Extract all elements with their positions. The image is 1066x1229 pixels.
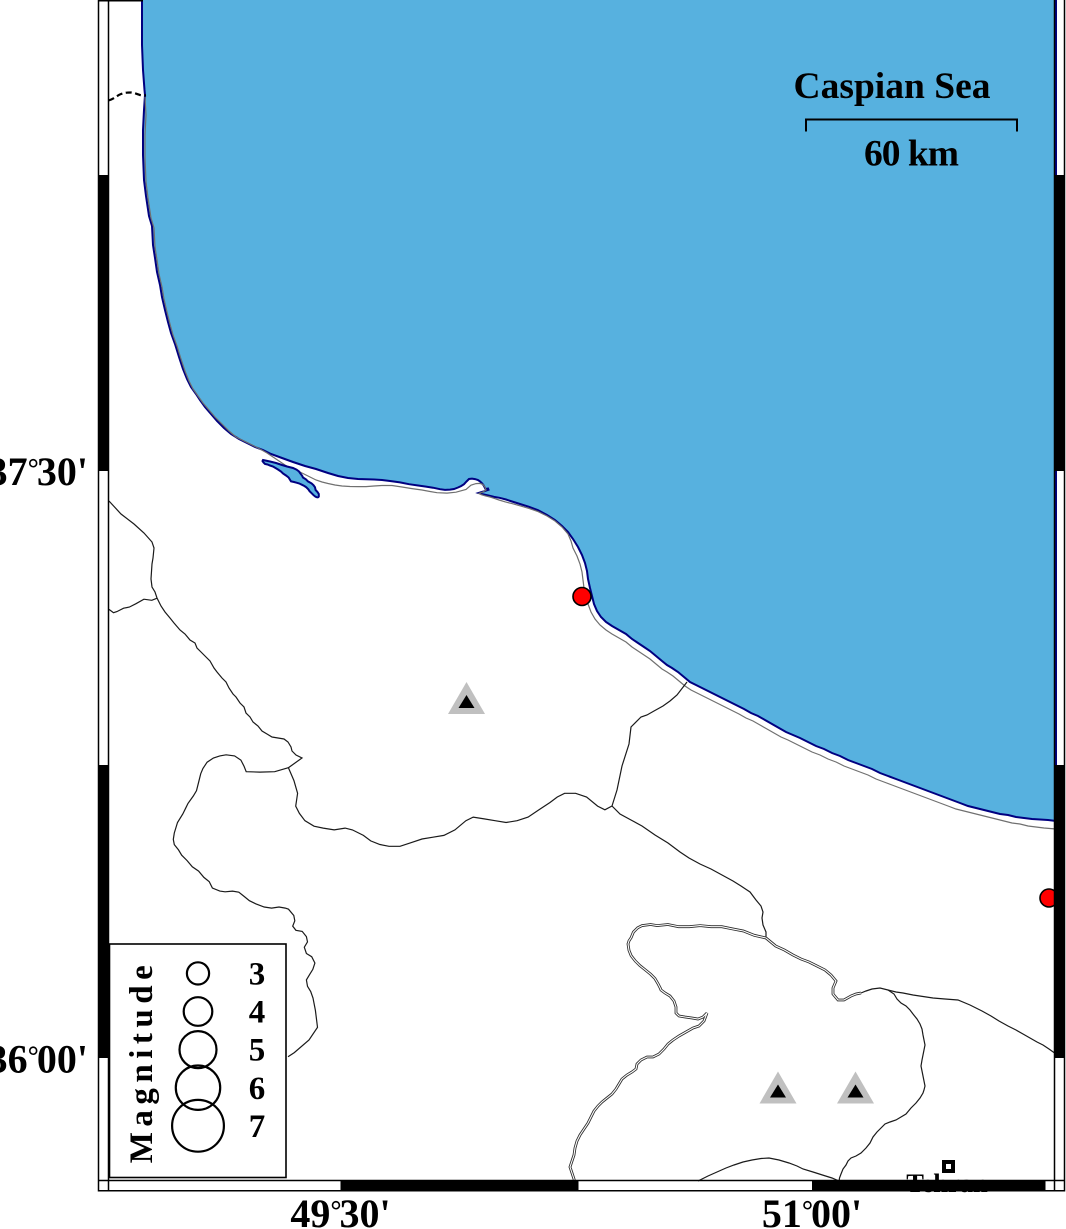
svg-text:5: 5 [249,1033,266,1069]
svg-text:6: 6 [249,1071,266,1107]
svg-text:4: 4 [249,995,266,1031]
svg-text:3: 3 [249,957,266,993]
svg-text:Magnitude: Magnitude [124,960,160,1164]
svg-text:36°00': 36°00' [0,1037,88,1082]
svg-text:37°30': 37°30' [0,449,88,494]
svg-text:Caspian Sea: Caspian Sea [794,66,991,107]
svg-text:7: 7 [249,1109,266,1145]
svg-text:51°00': 51°00' [762,1191,862,1229]
svg-text:49°30': 49°30' [290,1191,390,1229]
svg-text:60 km: 60 km [864,134,959,175]
